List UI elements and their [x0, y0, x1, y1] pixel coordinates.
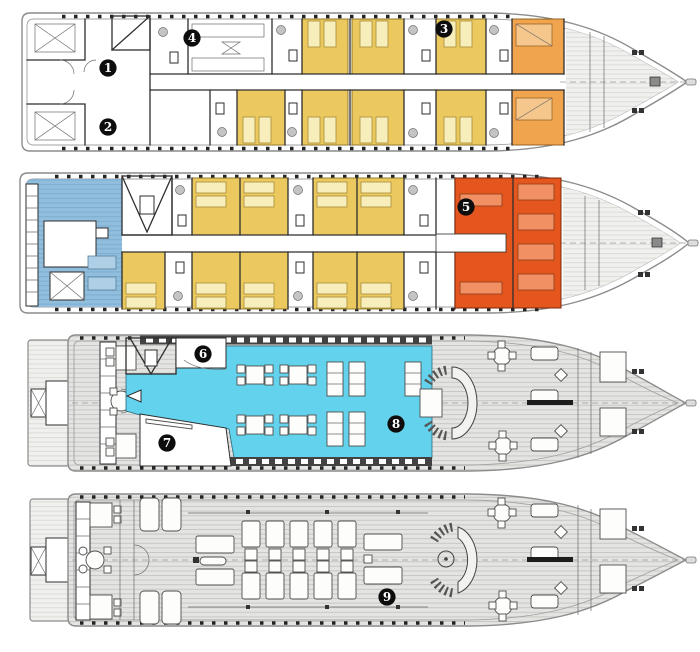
deck-2-main	[20, 173, 698, 313]
marker-3-number: 3	[440, 22, 448, 36]
deck1-bowsprit	[686, 79, 696, 85]
marker-7: 7	[158, 434, 175, 451]
marker-8: 8	[387, 415, 404, 432]
marker-4: 4	[183, 29, 200, 46]
deck-1-lower	[22, 13, 696, 151]
marker-2-number: 2	[104, 120, 112, 134]
marker-7-number: 7	[163, 436, 171, 450]
marker-9-number: 9	[383, 590, 391, 604]
marker-6-number: 6	[199, 347, 207, 361]
marker-5: 5	[457, 198, 474, 215]
deck-3-dining	[28, 335, 696, 471]
marker-4-number: 4	[188, 31, 196, 45]
marker-1-number: 1	[104, 61, 112, 75]
marker-9: 9	[378, 588, 395, 605]
marker-5-number: 5	[462, 200, 470, 214]
deck4-swim-platform	[30, 499, 70, 621]
ship-deck-plans-diagram: 1 2 3 4 5 6 7 8 9	[0, 0, 700, 652]
deck3-swim-platform	[28, 340, 70, 466]
deck2-bowsprit	[688, 240, 698, 246]
deck2-red-suites	[436, 178, 561, 308]
deck-plans-figure: 1 2 3 4 5 6 7 8 9	[0, 0, 700, 652]
marker-3: 3	[435, 20, 452, 37]
marker-8-number: 8	[392, 417, 400, 431]
deck-4-sun	[30, 494, 696, 626]
deck4-bowsprit	[686, 557, 696, 563]
marker-2: 2	[99, 118, 116, 135]
marker-1: 1	[99, 59, 116, 76]
marker-6: 6	[194, 345, 211, 362]
deck3-bowsprit	[686, 400, 696, 406]
